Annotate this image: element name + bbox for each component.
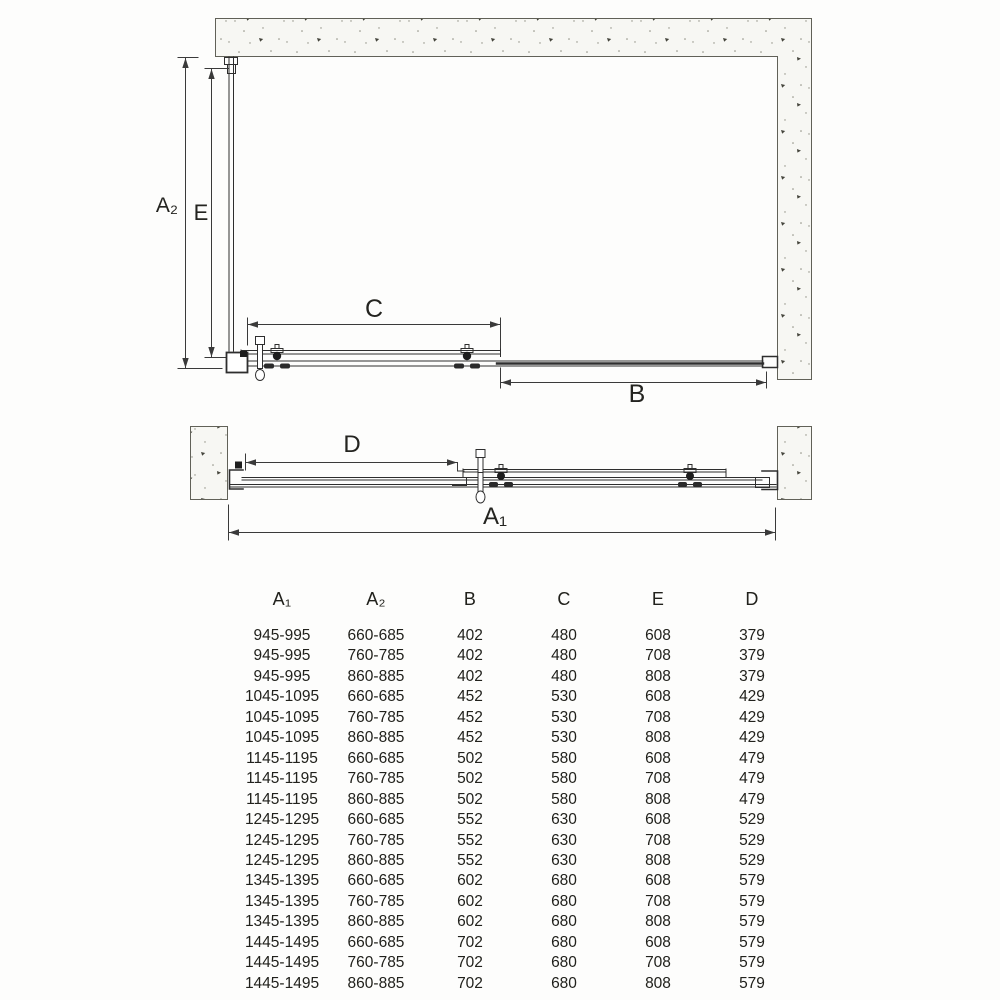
dimension-table-header: A₁A₂BCED: [235, 589, 799, 610]
table-cell: 760-785: [329, 953, 423, 973]
table-cell: 680: [517, 892, 611, 912]
table-cell: 1045-1095: [235, 687, 329, 707]
table-cell: 529: [705, 851, 799, 871]
table-cell: 452: [423, 687, 517, 707]
table-cell: 608: [611, 810, 705, 830]
table-cell: 1245-1295: [235, 851, 329, 871]
table-cell: 1245-1295: [235, 831, 329, 851]
dimension-e: [205, 69, 228, 358]
table-cell: 552: [423, 831, 517, 851]
table-cell: 608: [611, 871, 705, 891]
table-cell: 660-685: [329, 687, 423, 707]
table-cell: 480: [517, 626, 611, 646]
sliding-door-assembly-top: [227, 349, 778, 373]
table-column-header: A₁: [235, 589, 329, 610]
table-cell: 452: [423, 708, 517, 728]
table-cell: 608: [611, 687, 705, 707]
table-cell: 479: [705, 790, 799, 810]
table-cell: 529: [705, 831, 799, 851]
table-cell: 860-885: [329, 851, 423, 871]
table-cell: 702: [423, 933, 517, 953]
table-cell: 579: [705, 974, 799, 994]
label-a2: A₂: [156, 194, 178, 217]
table-cell: 760-785: [329, 708, 423, 728]
table-cell: 579: [705, 912, 799, 932]
label-e: E: [194, 200, 209, 225]
label-c: C: [365, 295, 383, 323]
table-column-header: A₂: [329, 589, 423, 610]
table-cell: 708: [611, 708, 705, 728]
table-cell: 608: [611, 749, 705, 769]
table-cell: 860-885: [329, 790, 423, 810]
table-cell: 608: [611, 933, 705, 953]
table-cell: 860-885: [329, 974, 423, 994]
table-cell: 552: [423, 810, 517, 830]
door-handle-front-view: [476, 450, 485, 504]
table-cell: 480: [517, 646, 611, 666]
table-cell: 860-885: [329, 667, 423, 687]
table-cell: 530: [517, 708, 611, 728]
technical-drawing-page: A₂ E: [0, 0, 1000, 1000]
roller-front-right: [678, 465, 702, 488]
table-cell: 402: [423, 626, 517, 646]
table-cell: 429: [705, 687, 799, 707]
dimension-table-body: 945-995660-685402480608379945-995760-785…: [235, 626, 799, 994]
label-b: B: [629, 380, 646, 408]
table-cell: 1345-1395: [235, 912, 329, 932]
wall-top-right: [216, 19, 812, 380]
table-cell: 529: [705, 810, 799, 830]
table-cell: 708: [611, 953, 705, 973]
table-cell: 708: [611, 892, 705, 912]
table-cell: 502: [423, 769, 517, 789]
front-view-drawing: D A₁: [191, 427, 812, 541]
table-cell: 708: [611, 769, 705, 789]
table-cell: 429: [705, 708, 799, 728]
table-cell: 660-685: [329, 626, 423, 646]
table-cell: 630: [517, 851, 611, 871]
table-cell: 379: [705, 667, 799, 687]
table-cell: 1445-1495: [235, 974, 329, 994]
table-cell: 808: [611, 974, 705, 994]
table-cell: 860-885: [329, 728, 423, 748]
table-cell: 680: [517, 953, 611, 973]
roller-right: [454, 345, 480, 369]
table-cell: 660-685: [329, 871, 423, 891]
label-d: D: [343, 431, 360, 458]
table-column-header: D: [705, 589, 799, 610]
table-cell: 708: [611, 831, 705, 851]
side-glass-panel: [225, 57, 238, 351]
table-cell: 402: [423, 646, 517, 666]
table-cell: 502: [423, 749, 517, 769]
table-cell: 945-995: [235, 646, 329, 666]
table-cell: 530: [517, 687, 611, 707]
table-cell: 1245-1295: [235, 810, 329, 830]
table-cell: 379: [705, 626, 799, 646]
table-cell: 760-785: [329, 646, 423, 666]
top-view-drawing: A₂ E: [156, 19, 812, 409]
table-cell: 680: [517, 933, 611, 953]
table-cell: 1045-1095: [235, 728, 329, 748]
table-cell: 479: [705, 769, 799, 789]
table-cell: 1345-1395: [235, 871, 329, 891]
table-cell: 1445-1495: [235, 933, 329, 953]
roller-front-left: [489, 465, 513, 488]
table-cell: 660-685: [329, 933, 423, 953]
table-cell: 808: [611, 667, 705, 687]
table-cell: 452: [423, 728, 517, 748]
table-cell: 808: [611, 790, 705, 810]
table-column-header: E: [611, 589, 705, 610]
table-cell: 760-785: [329, 769, 423, 789]
table-cell: 602: [423, 892, 517, 912]
table-cell: 808: [611, 912, 705, 932]
table-cell: 1145-1195: [235, 749, 329, 769]
table-cell: 579: [705, 953, 799, 973]
table-column-header: B: [423, 589, 517, 610]
table-cell: 760-785: [329, 831, 423, 851]
table-cell: 680: [517, 974, 611, 994]
wall-left-block: [191, 427, 228, 500]
table-column-header: C: [517, 589, 611, 610]
table-cell: 945-995: [235, 626, 329, 646]
table-cell: 480: [517, 667, 611, 687]
table-cell: 702: [423, 953, 517, 973]
table-cell: 579: [705, 892, 799, 912]
label-a1: A₁: [483, 503, 507, 530]
table-cell: 1045-1095: [235, 708, 329, 728]
table-cell: 502: [423, 790, 517, 810]
table-cell: 579: [705, 871, 799, 891]
table-cell: 680: [517, 912, 611, 932]
table-cell: 479: [705, 749, 799, 769]
table-cell: 530: [517, 728, 611, 748]
table-cell: 580: [517, 749, 611, 769]
table-cell: 552: [423, 851, 517, 871]
table-cell: 402: [423, 667, 517, 687]
table-cell: 580: [517, 790, 611, 810]
table-cell: 630: [517, 831, 611, 851]
table-cell: 760-785: [329, 892, 423, 912]
table-cell: 602: [423, 871, 517, 891]
table-cell: 702: [423, 974, 517, 994]
table-cell: 1445-1495: [235, 953, 329, 973]
table-cell: 660-685: [329, 749, 423, 769]
table-cell: 660-685: [329, 810, 423, 830]
table-cell: 379: [705, 646, 799, 666]
table-cell: 1345-1395: [235, 892, 329, 912]
table-cell: 630: [517, 810, 611, 830]
table-cell: 680: [517, 871, 611, 891]
table-cell: 1145-1195: [235, 769, 329, 789]
table-cell: 580: [517, 769, 611, 789]
table-cell: 429: [705, 728, 799, 748]
table-cell: 945-995: [235, 667, 329, 687]
table-cell: 602: [423, 912, 517, 932]
table-cell: 1145-1195: [235, 790, 329, 810]
roller-left: [264, 345, 290, 369]
wall-right-block: [778, 427, 812, 500]
table-cell: 608: [611, 626, 705, 646]
table-cell: 708: [611, 646, 705, 666]
table-cell: 808: [611, 728, 705, 748]
table-cell: 860-885: [329, 912, 423, 932]
table-cell: 579: [705, 933, 799, 953]
shower-enclosure-diagram: A₂ E: [0, 0, 1000, 572]
door-handle-top-view: [256, 337, 265, 381]
table-cell: 808: [611, 851, 705, 871]
